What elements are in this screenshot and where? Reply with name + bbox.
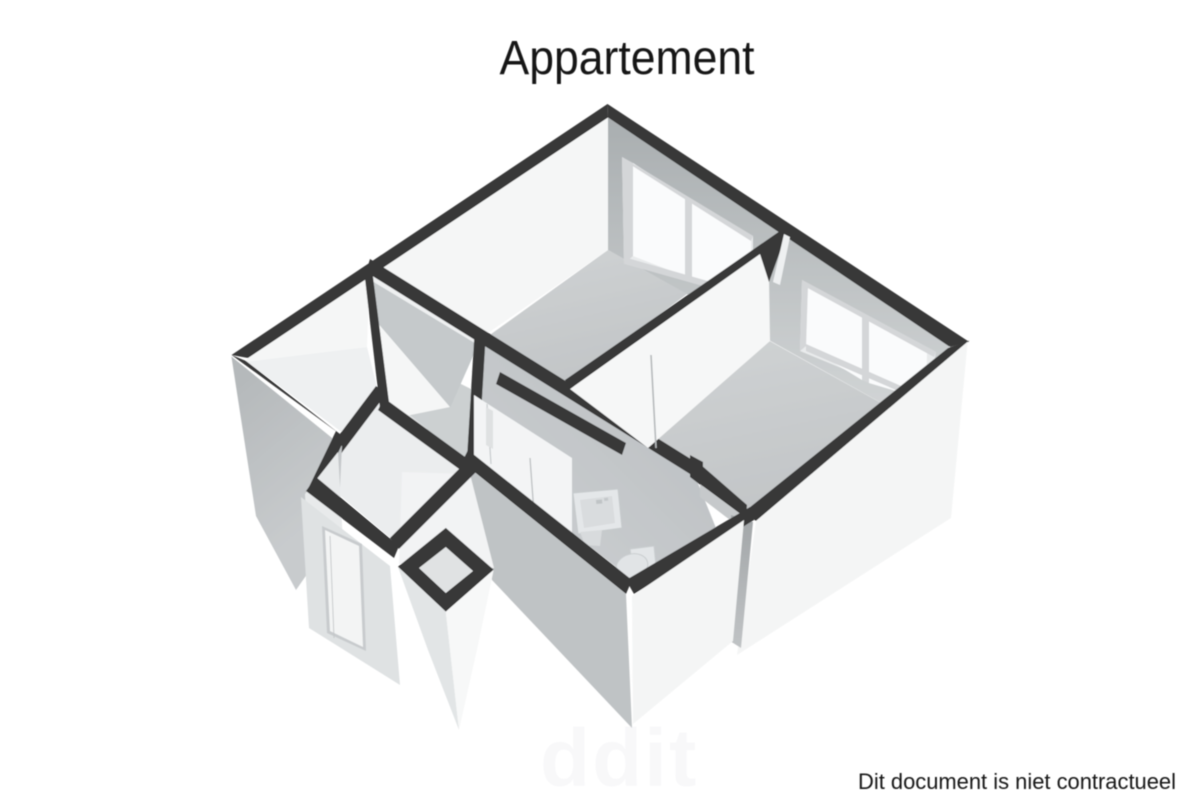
svg-text:ddit: ddit: [540, 713, 698, 801]
svg-text:Dit document is niet contractu: Dit document is niet contractueel: [858, 769, 1176, 794]
svg-text:Appartement: Appartement: [500, 32, 755, 85]
